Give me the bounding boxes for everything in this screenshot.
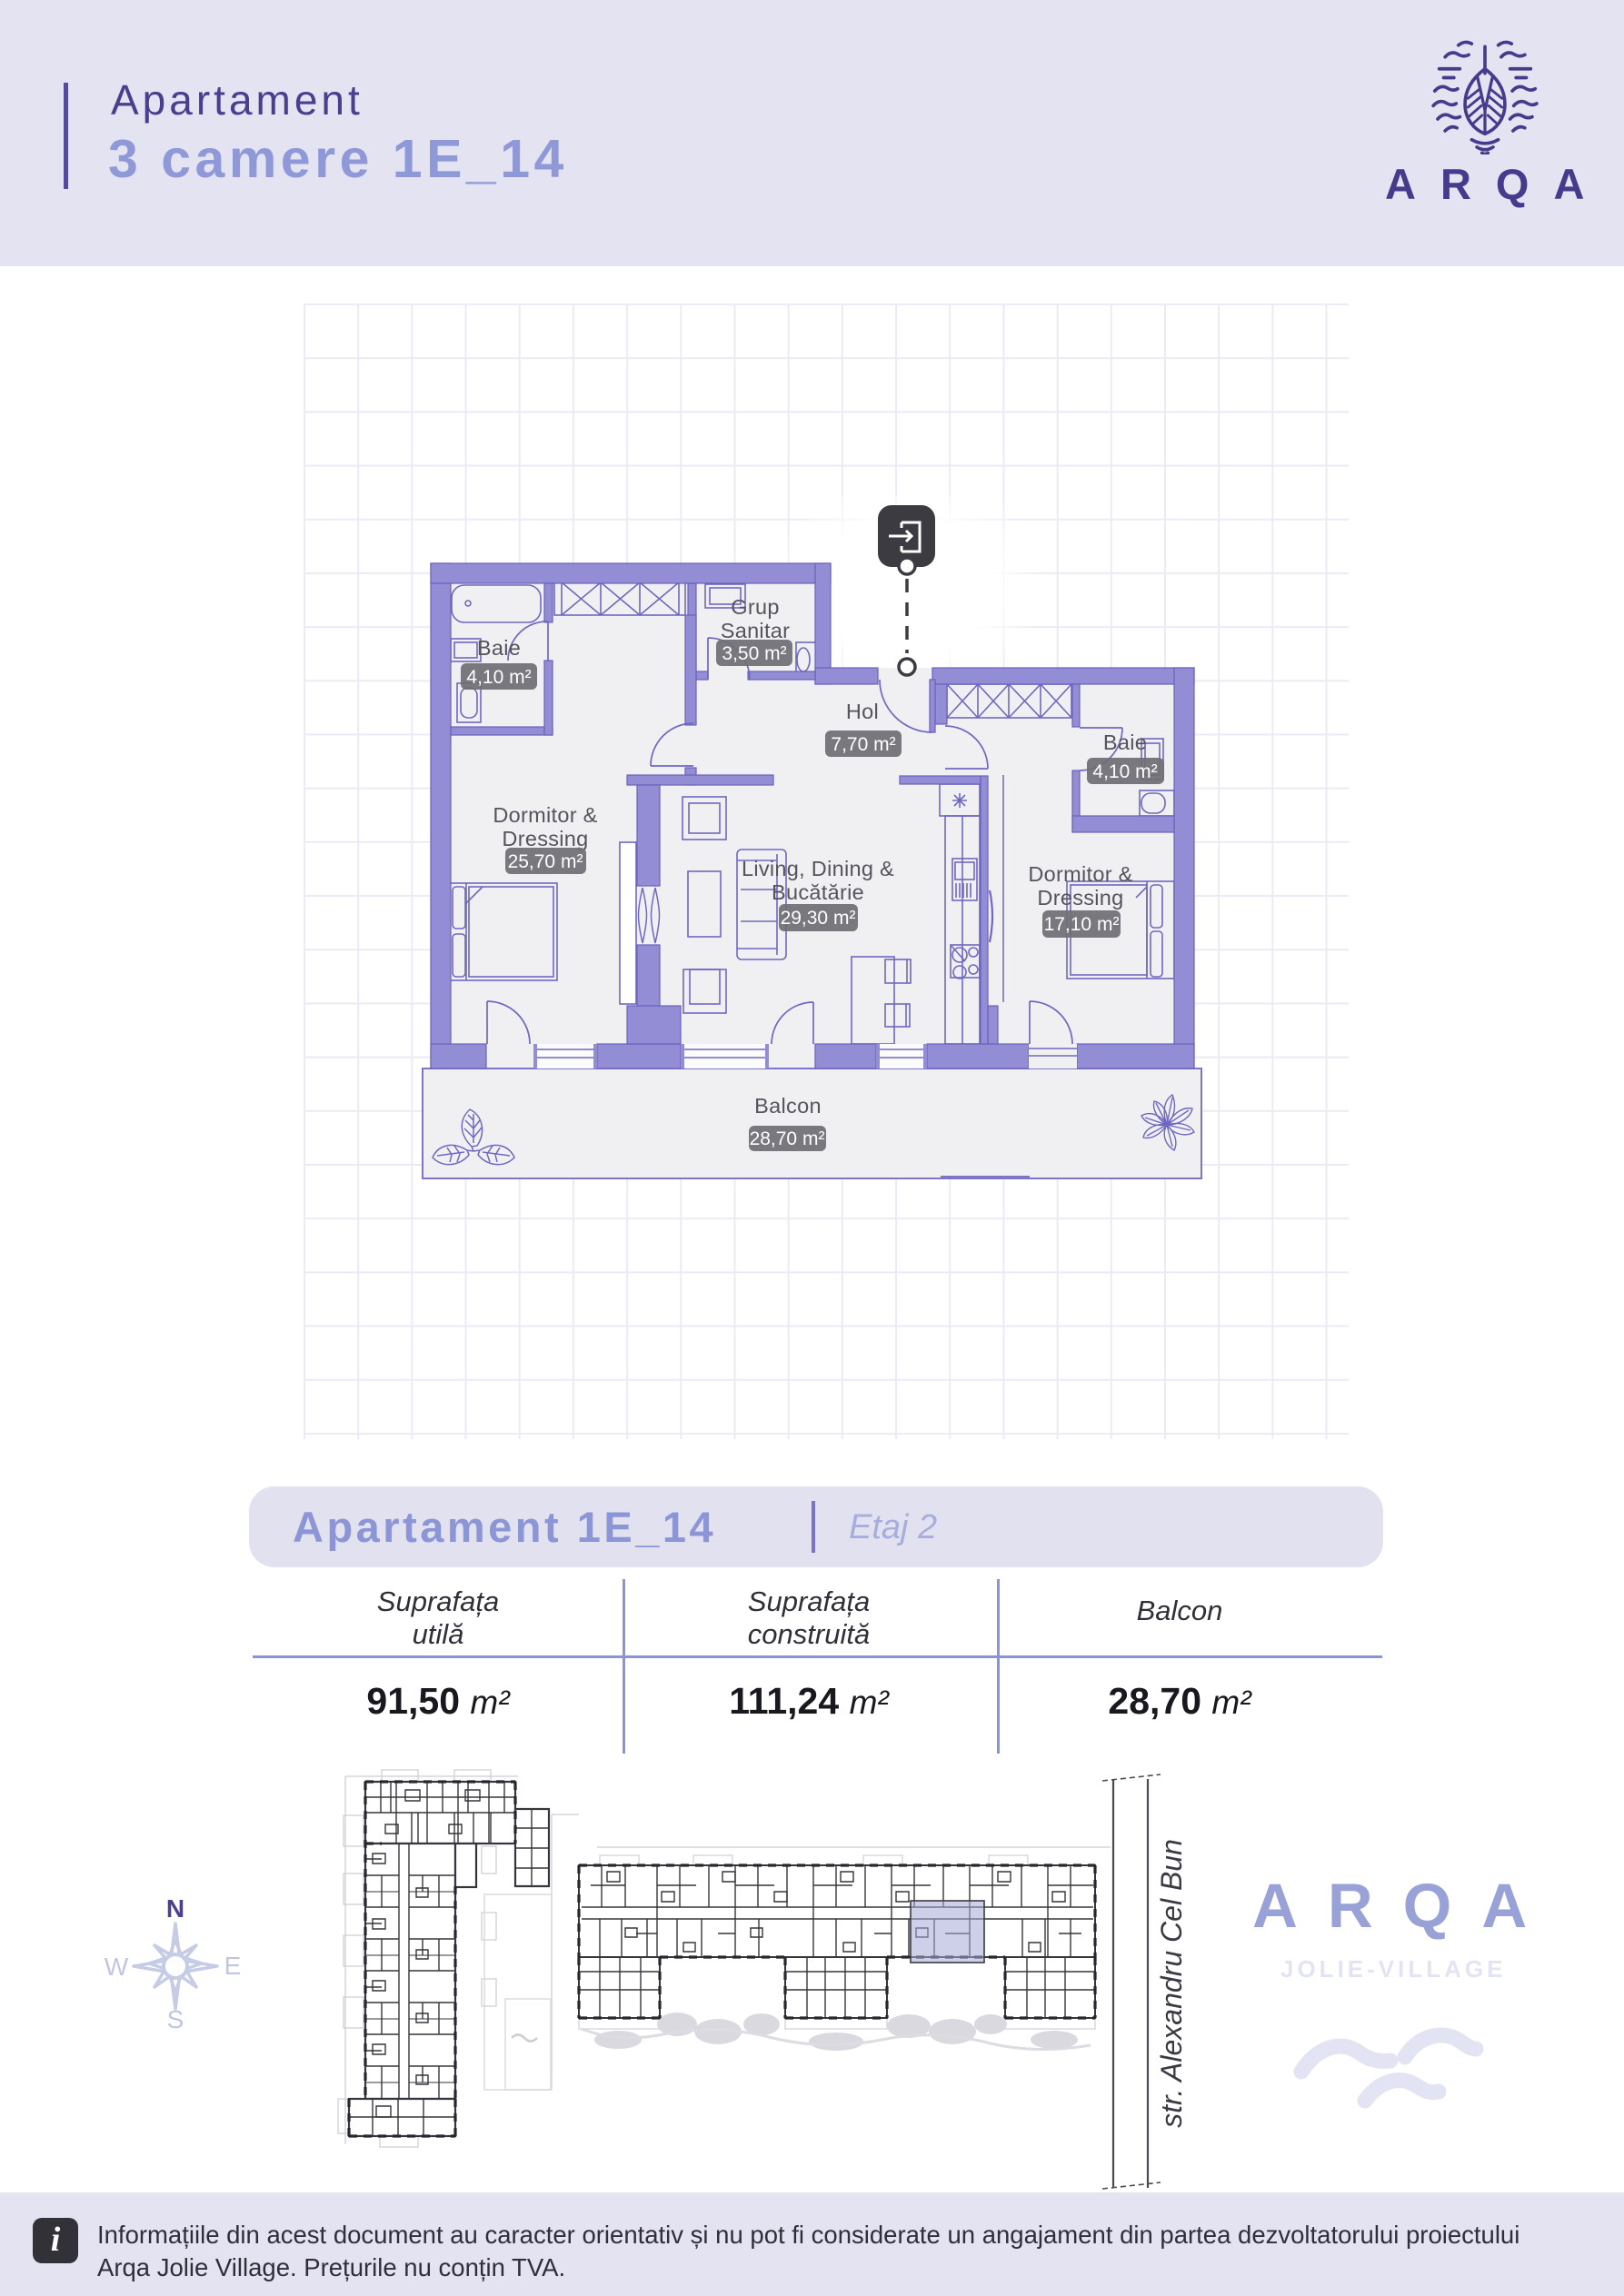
svg-text:W: W bbox=[105, 1953, 129, 1981]
svg-text:Baie: Baie bbox=[477, 636, 521, 660]
svg-text:3,50 m²: 3,50 m² bbox=[722, 643, 786, 664]
svg-text:N: N bbox=[166, 1894, 184, 1923]
svg-text:Balcon: Balcon bbox=[754, 1094, 822, 1118]
svg-text:str. Alexandru Cel Bun: str. Alexandru Cel Bun bbox=[1155, 1839, 1188, 2128]
svg-text:Dressing: Dressing bbox=[502, 827, 588, 850]
svg-text:4,10 m²: 4,10 m² bbox=[466, 667, 531, 688]
svg-text:Dormitor &: Dormitor & bbox=[493, 803, 597, 827]
svg-text:Dormitor &: Dormitor & bbox=[1028, 862, 1132, 886]
svg-text:28,70 m²: 28,70 m² bbox=[750, 1128, 825, 1149]
svg-text:25,70 m²: 25,70 m² bbox=[508, 851, 583, 872]
svg-text:Baie: Baie bbox=[1103, 731, 1147, 754]
svg-text:29,30 m²: 29,30 m² bbox=[781, 908, 856, 929]
svg-text:Living, Dining &: Living, Dining & bbox=[742, 857, 894, 880]
svg-text:7,70 m²: 7,70 m² bbox=[831, 734, 895, 755]
svg-text:17,10 m²: 17,10 m² bbox=[1044, 914, 1120, 935]
svg-text:Hol: Hol bbox=[846, 700, 879, 723]
svg-text:Grup: Grup bbox=[731, 595, 779, 619]
svg-text:Bucătărie: Bucătărie bbox=[772, 880, 864, 904]
svg-text:Dressing: Dressing bbox=[1037, 886, 1123, 909]
svg-text:S: S bbox=[167, 2005, 184, 2033]
svg-text:Sanitar: Sanitar bbox=[721, 619, 791, 642]
svg-text:4,10 m²: 4,10 m² bbox=[1092, 761, 1157, 782]
svg-text:E: E bbox=[224, 1952, 242, 1980]
